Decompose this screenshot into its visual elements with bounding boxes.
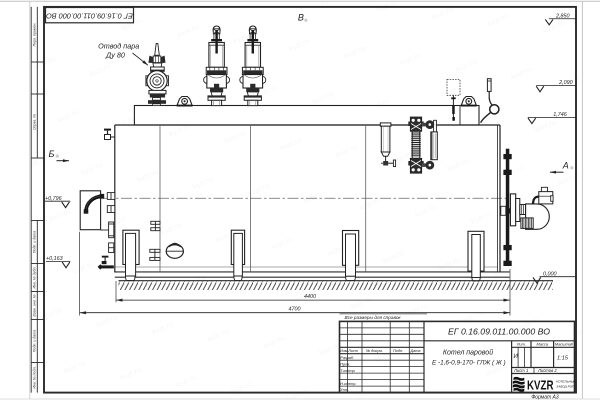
svg-text:Перв. примен.: Перв. примен.	[33, 23, 37, 47]
svg-text:Подп. и дата: Подп. и дата	[33, 231, 37, 254]
svg-text:Отвод пара: Отвод пара	[98, 41, 139, 50]
svg-text:Е -1,6-0,9-170- ГЛЖ ( Ж ): Е -1,6-0,9-170- ГЛЖ ( Ж )	[432, 359, 506, 366]
svg-text:ЕГ 0.16.09.011.00.000 ВО: ЕГ 0.16.09.011.00.000 ВО	[46, 11, 133, 20]
svg-text:2,090: 2,090	[558, 80, 573, 86]
svg-text:Изм.: Изм.	[340, 349, 348, 353]
svg-text:Взам. инв. №: Взам. инв. №	[33, 294, 37, 316]
svg-text:№ докум.: № докум.	[366, 349, 383, 353]
svg-text:Н.контр.: Н.контр.	[340, 382, 356, 386]
svg-text:Т.контр.: Т.контр.	[340, 369, 355, 373]
svg-text:Ду 80: Ду 80	[105, 51, 125, 60]
svg-text:ЗАВОД РЭП: ЗАВОД РЭП	[556, 384, 575, 388]
svg-text:И: И	[514, 353, 519, 360]
svg-text:Лит.: Лит.	[516, 342, 526, 347]
svg-text:А: А	[562, 161, 569, 171]
svg-text:0,000: 0,000	[543, 271, 557, 277]
svg-text:4700: 4700	[289, 306, 301, 312]
svg-text:Подп. и дата: Подп. и дата	[33, 330, 37, 353]
svg-text:1,746: 1,746	[553, 112, 567, 118]
svg-text:1:15: 1:15	[557, 356, 569, 362]
svg-text:Подп.: Подп.	[393, 349, 403, 353]
svg-text:2,850: 2,850	[555, 13, 570, 19]
svg-text:Лист: Лист	[347, 349, 358, 353]
svg-text:Формат А3: Формат А3	[531, 394, 559, 400]
svg-text:В: В	[298, 13, 304, 23]
svg-text:Все размеры для справок: Все размеры для справок	[345, 315, 402, 320]
svg-text:Дата: Дата	[410, 349, 421, 353]
svg-text:Инв. № подл.: Инв. № подл.	[33, 366, 37, 388]
svg-text:KVZR: KVZR	[527, 378, 554, 393]
svg-text:Инв. № дубл.: Инв. № дубл.	[33, 266, 37, 288]
svg-text:Пров.: Пров.	[340, 362, 350, 366]
svg-text:Справ. №: Справ. №	[33, 114, 37, 130]
svg-text:Масштаб: Масштаб	[555, 342, 574, 347]
svg-text:Разраб.: Разраб.	[340, 356, 354, 360]
svg-text:Масса: Масса	[537, 342, 549, 347]
svg-text:Котел паровой: Котел паровой	[443, 348, 493, 356]
svg-text:КОТЕЛЬНЫЙ: КОТЕЛЬНЫЙ	[556, 379, 576, 383]
svg-text:Листов 2: Листов 2	[537, 368, 557, 373]
svg-text:Лист 1: Лист 1	[513, 368, 528, 373]
svg-text:Б: Б	[49, 149, 55, 159]
svg-text:ЕГ 0.16.09.011.00.000 ВО: ЕГ 0.16.09.011.00.000 ВО	[448, 326, 550, 336]
svg-text:4400: 4400	[304, 294, 316, 300]
svg-text:Утв.: Утв.	[340, 388, 349, 392]
